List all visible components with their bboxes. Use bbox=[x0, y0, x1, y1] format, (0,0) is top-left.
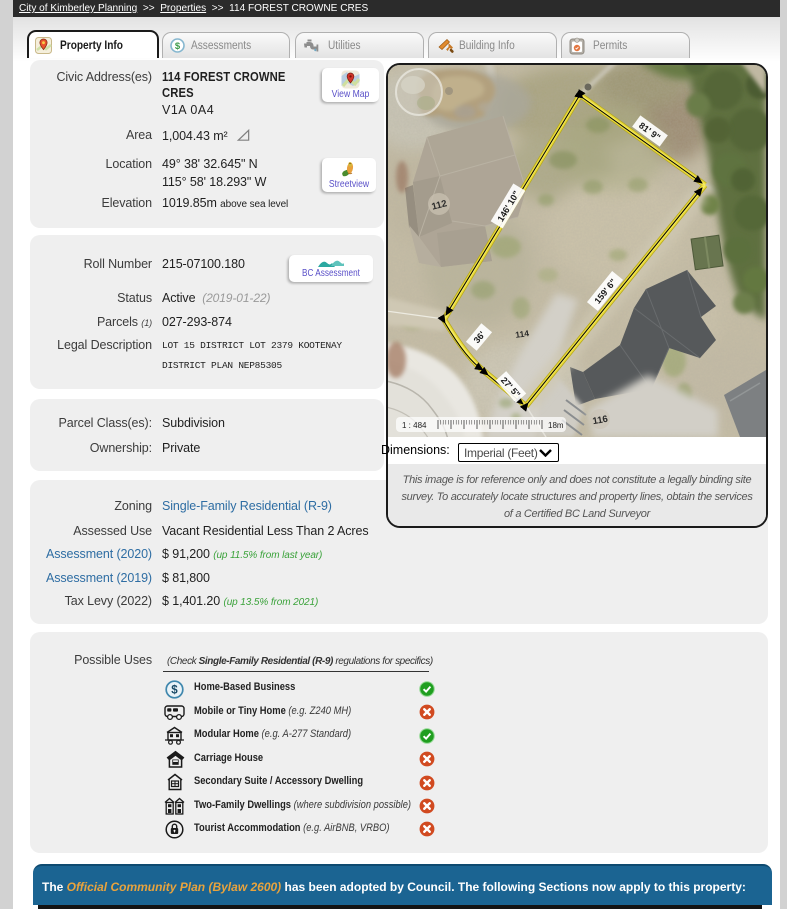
svg-text:18m: 18m bbox=[548, 421, 564, 430]
svg-text:1 : 484: 1 : 484 bbox=[402, 421, 427, 430]
svg-text:114: 114 bbox=[515, 328, 530, 340]
svg-text:$: $ bbox=[171, 685, 178, 697]
svg-text:$: $ bbox=[175, 41, 181, 52]
